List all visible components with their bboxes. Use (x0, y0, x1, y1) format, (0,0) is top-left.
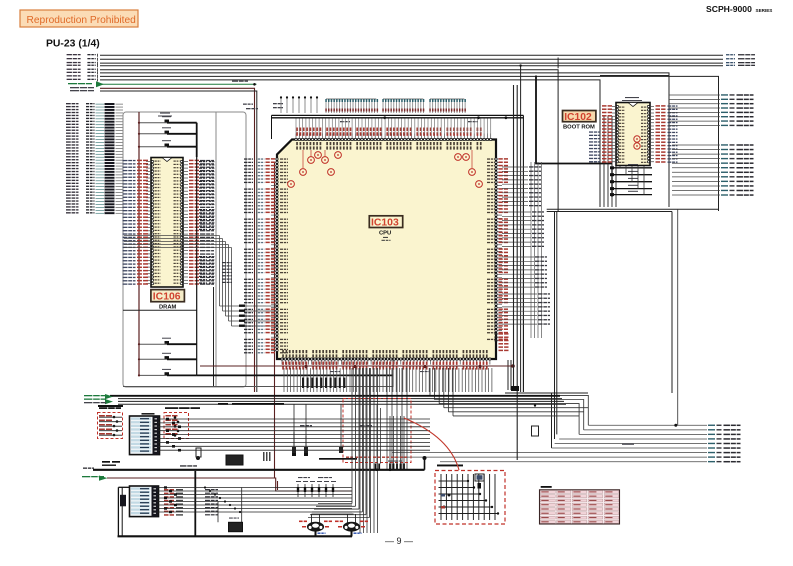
svg-text:IC106: IC106 (153, 292, 181, 303)
svg-text:PU-23 (1/4): PU-23 (1/4) (46, 39, 100, 50)
svg-text:CPU: CPU (379, 231, 391, 237)
svg-text:IC103: IC103 (371, 217, 399, 228)
svg-text:Reproduction Prohibited: Reproduction Prohibited (27, 15, 137, 26)
svg-text:IC102: IC102 (564, 112, 592, 123)
svg-text:— 9 —: — 9 — (385, 536, 413, 546)
svg-text:SCPH-9000: SCPH-9000 (706, 4, 752, 14)
svg-text:BOOT ROM: BOOT ROM (563, 125, 595, 131)
svg-text:DRAM: DRAM (159, 305, 177, 311)
svg-text:SERIES: SERIES (756, 8, 773, 13)
